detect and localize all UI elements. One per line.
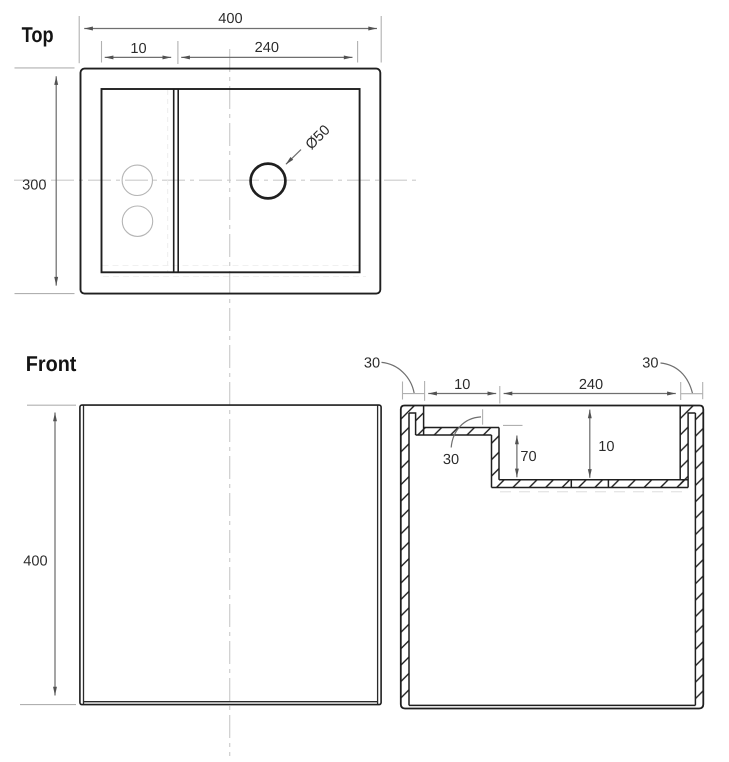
svg-text:30: 30 (642, 355, 658, 371)
svg-text:Front: Front (26, 352, 77, 376)
svg-text:30: 30 (443, 452, 459, 468)
svg-text:Top: Top (22, 23, 54, 47)
svg-text:400: 400 (218, 11, 242, 27)
svg-text:240: 240 (255, 40, 279, 56)
svg-text:30: 30 (364, 356, 380, 372)
svg-text:70: 70 (520, 449, 536, 465)
svg-text:Ø50: Ø50 (303, 122, 334, 153)
svg-text:240: 240 (579, 377, 603, 393)
svg-text:400: 400 (23, 553, 47, 569)
svg-text:10: 10 (598, 439, 614, 455)
svg-text:10: 10 (454, 377, 470, 393)
svg-text:300: 300 (22, 178, 46, 194)
svg-text:10: 10 (130, 41, 146, 57)
